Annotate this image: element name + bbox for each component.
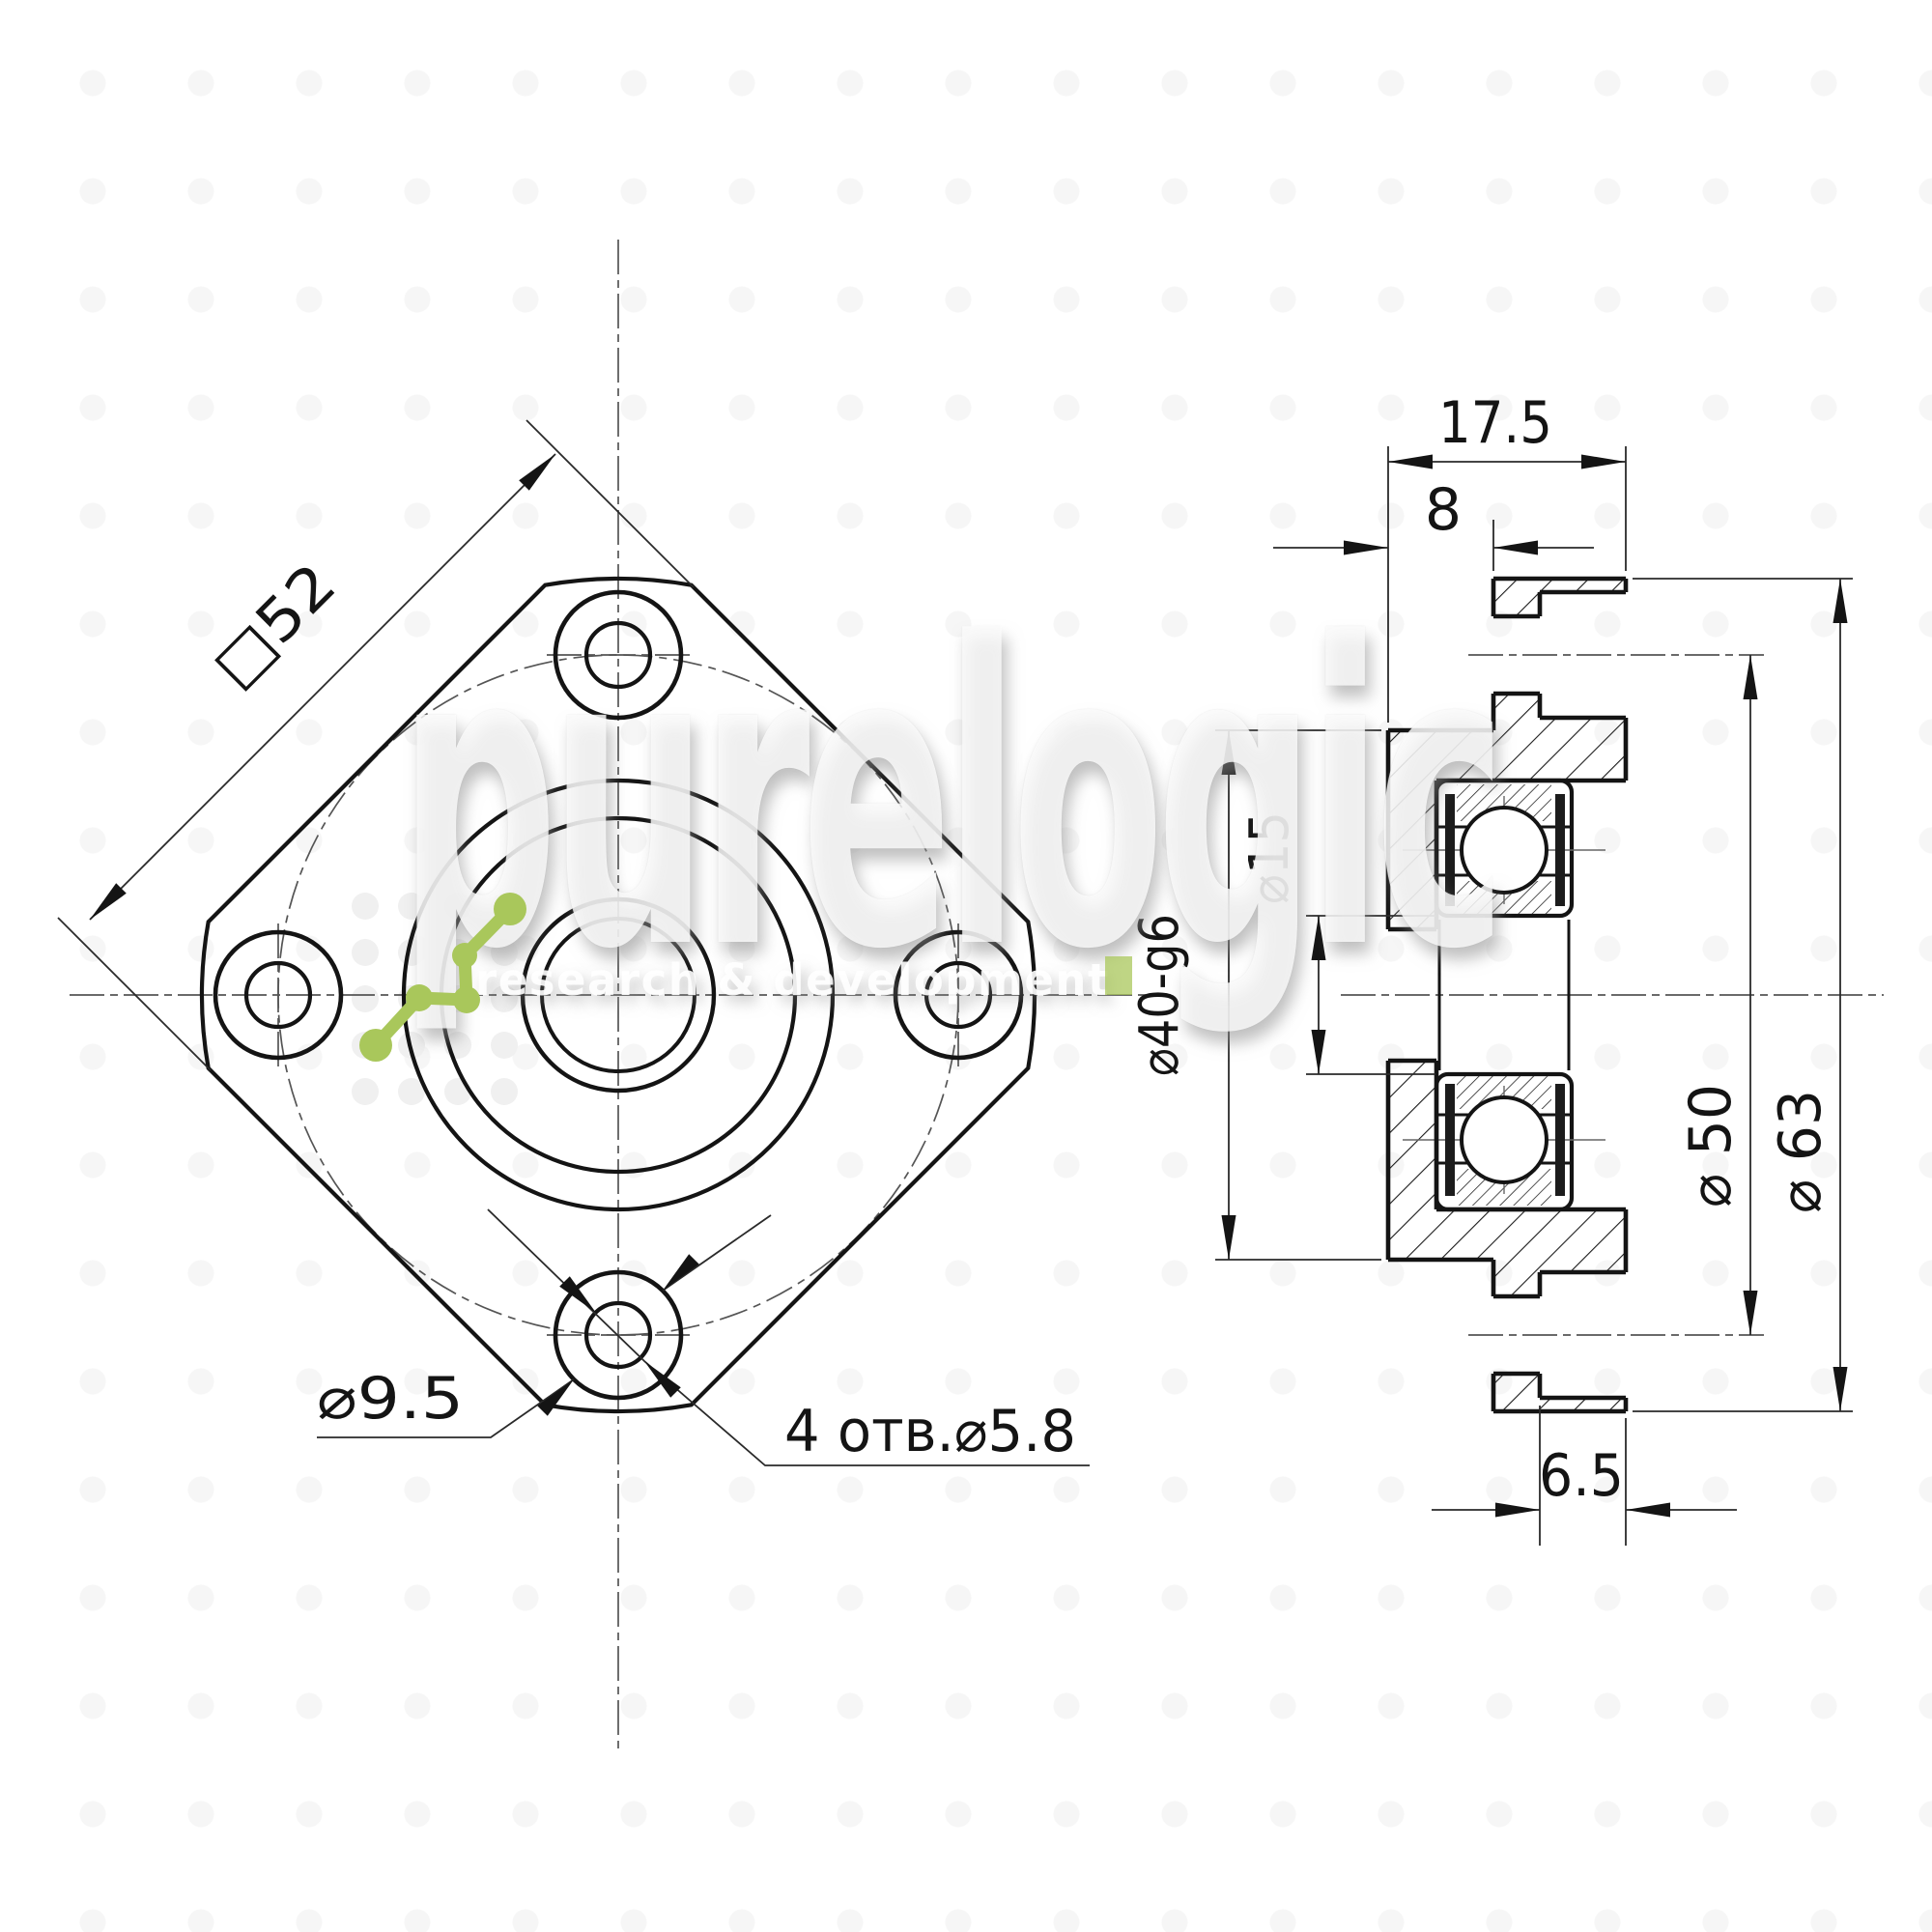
purelogic-logo-mark: [359, 893, 1132, 1062]
logo-overlay: [0, 0, 1932, 1932]
tagline-green-block: [1105, 956, 1132, 995]
